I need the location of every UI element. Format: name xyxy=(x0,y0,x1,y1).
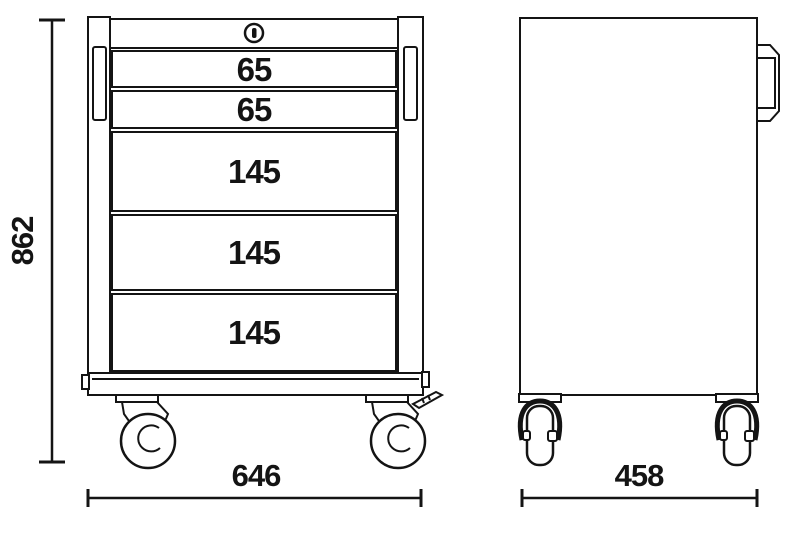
side-panel xyxy=(520,18,757,395)
front-view: 65 65 145 145 145 xyxy=(82,17,442,468)
drawer-3: 145 xyxy=(112,132,396,211)
side-handle-icon xyxy=(757,45,779,121)
drawer-5: 145 xyxy=(112,294,396,371)
bottom-rail xyxy=(88,373,423,395)
height-dimension: 862 xyxy=(5,20,65,462)
drawer-size-label: 145 xyxy=(228,314,281,351)
drawer-size-label: 65 xyxy=(237,91,272,128)
side-depth-dimension-label: 458 xyxy=(615,458,664,493)
right-handle-strip-icon xyxy=(404,47,417,120)
right-bumper-tab xyxy=(422,372,429,387)
side-depth-dimension: 458 xyxy=(522,458,757,507)
left-handle-strip-icon xyxy=(93,47,106,120)
caster-front-right-icon xyxy=(366,392,442,468)
drawer-4: 145 xyxy=(112,215,396,290)
drawer-size-label: 145 xyxy=(228,153,281,190)
drawer-1: 65 xyxy=(112,51,396,88)
caster-side-left-icon xyxy=(519,394,561,465)
left-bumper-tab xyxy=(82,375,89,389)
front-width-dimension-label: 646 xyxy=(232,458,281,493)
technical-drawing-page: 65 65 145 145 145 xyxy=(0,0,800,540)
side-view xyxy=(519,18,779,465)
drawer-size-label: 65 xyxy=(237,51,272,88)
caster-side-right-icon xyxy=(716,394,758,465)
height-dimension-label: 862 xyxy=(5,217,40,266)
drawer-size-label: 145 xyxy=(228,234,281,271)
caster-front-left-icon xyxy=(116,395,175,468)
tool-trolley-drawing: 65 65 145 145 145 xyxy=(0,0,800,540)
drawer-2: 65 xyxy=(112,91,396,128)
